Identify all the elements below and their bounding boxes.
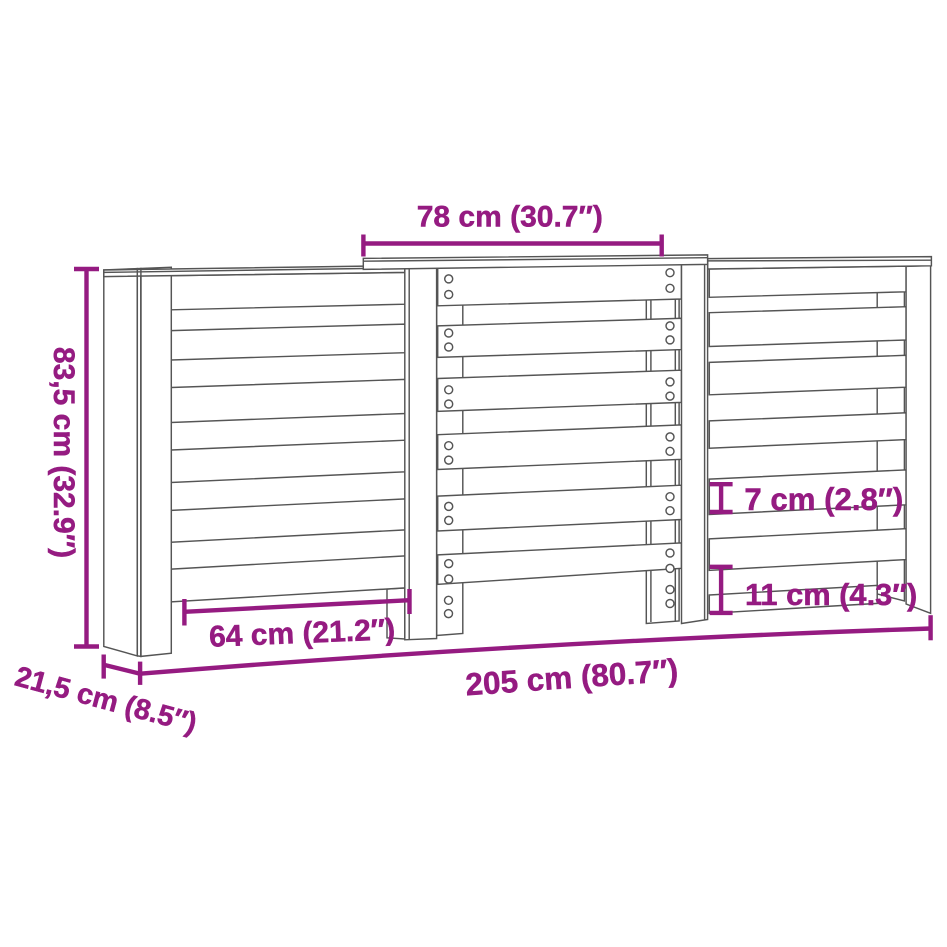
svg-text:78 cm (30.7″): 78 cm (30.7″) (417, 201, 603, 234)
svg-text:83,5 cm (32.9″): 83,5 cm (32.9″) (47, 347, 80, 558)
svg-text:11 cm (4.3″): 11 cm (4.3″) (745, 577, 917, 612)
svg-text:7 cm (2.8″): 7 cm (2.8″) (744, 482, 903, 517)
